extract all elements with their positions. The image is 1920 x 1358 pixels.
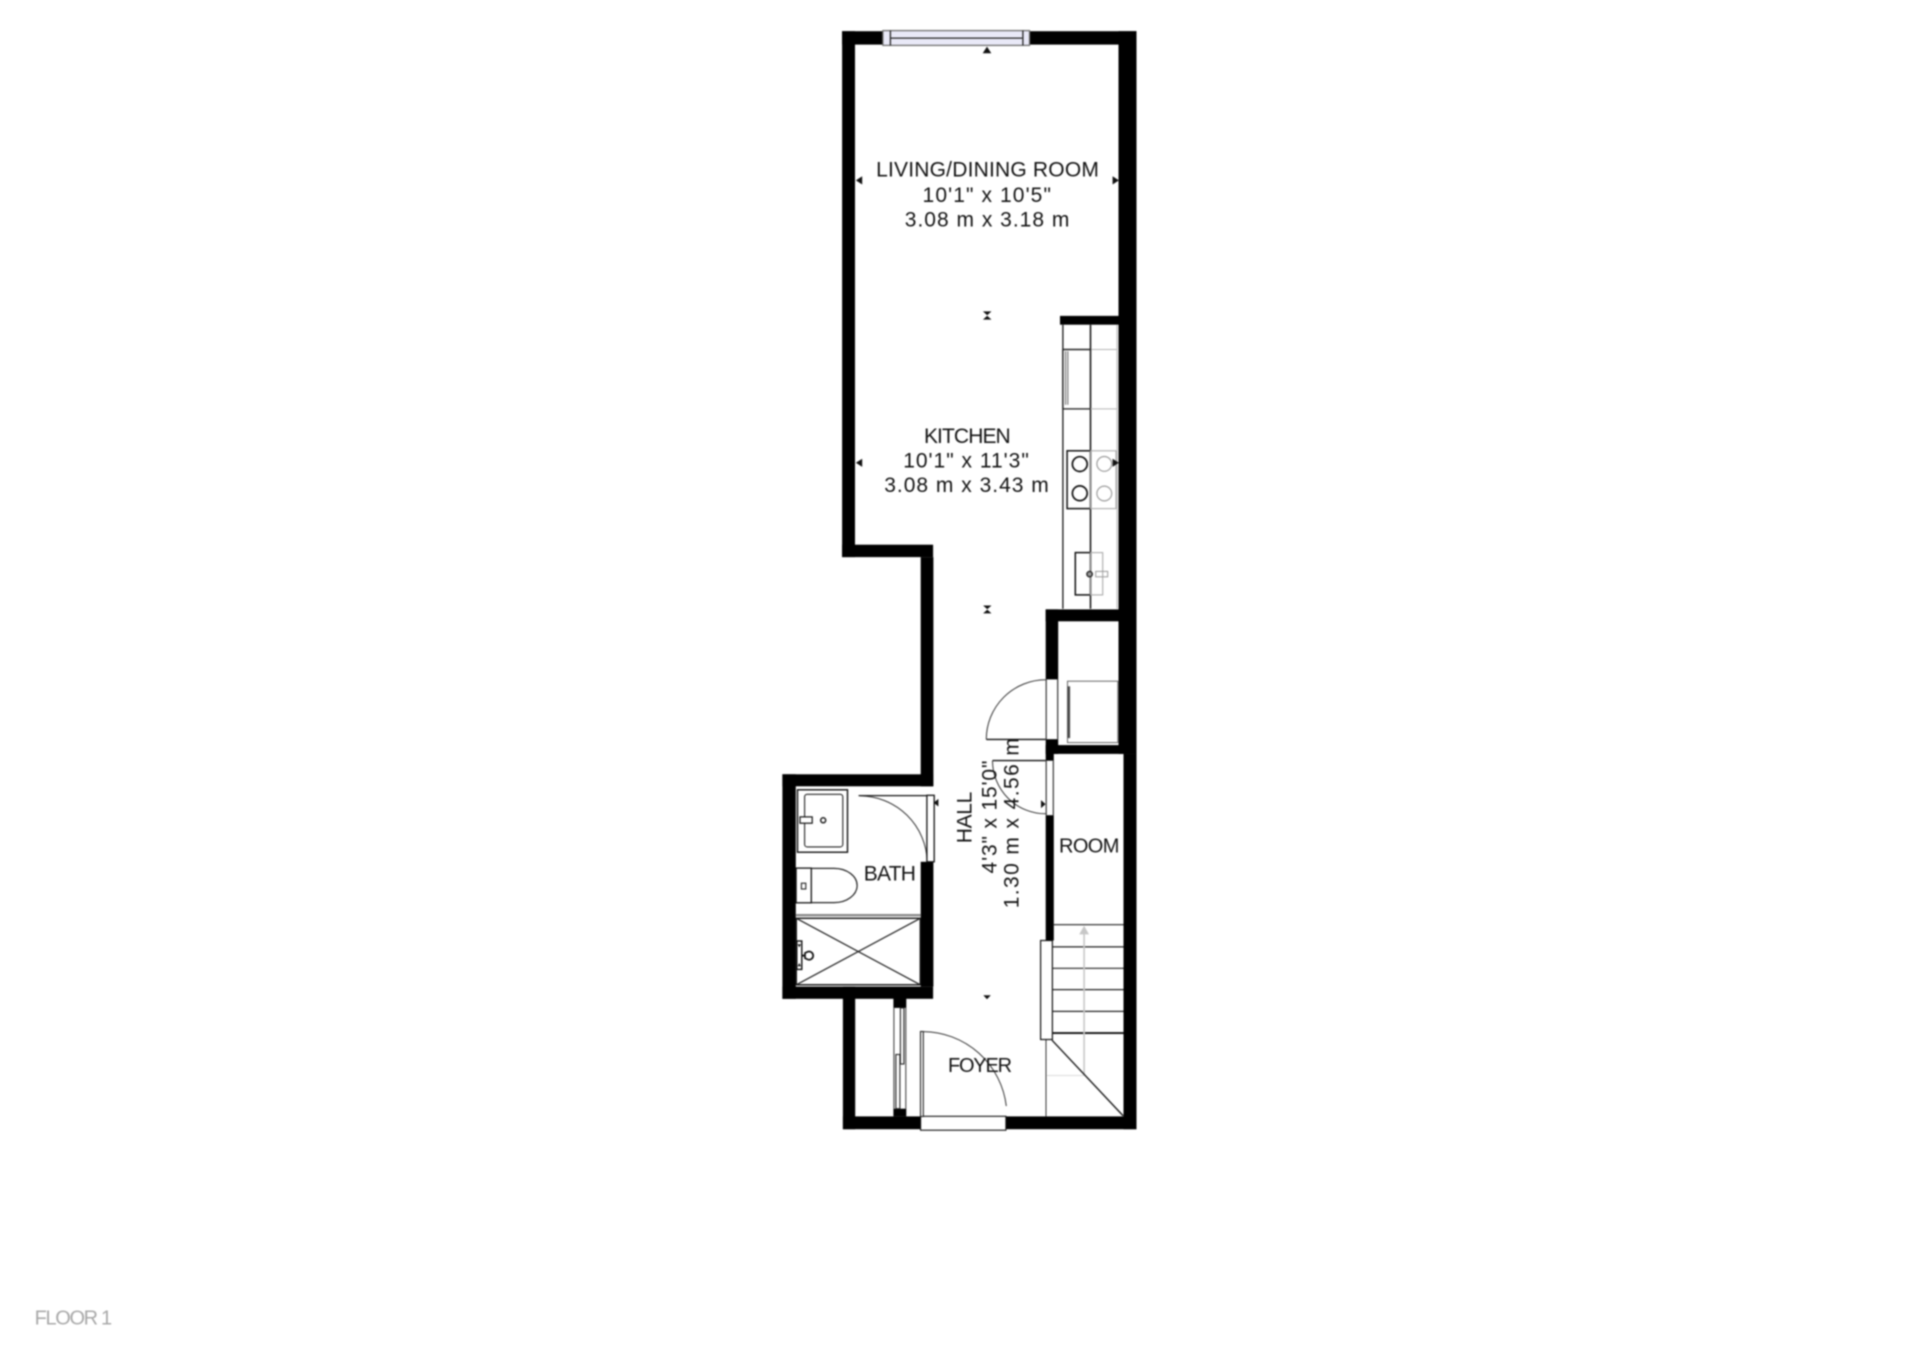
svg-text:4'3" x 15'0": 4'3" x 15'0" — [979, 760, 1002, 874]
svg-text:KITCHEN: KITCHEN — [924, 425, 1010, 448]
svg-text:3.08 m x 3.18 m: 3.08 m x 3.18 m — [905, 209, 1071, 232]
svg-text:LIVING/DINING ROOM: LIVING/DINING ROOM — [876, 158, 1099, 181]
svg-text:3.08 m x 3.43 m: 3.08 m x 3.43 m — [884, 474, 1050, 497]
svg-text:1.30 m x 4.56 m: 1.30 m x 4.56 m — [1001, 737, 1024, 909]
svg-text:FOYER: FOYER — [948, 1055, 1012, 1077]
svg-text:10'1" x 11'3": 10'1" x 11'3" — [903, 449, 1030, 472]
svg-text:FLOOR 1: FLOOR 1 — [35, 1308, 112, 1330]
svg-text:BATH: BATH — [864, 863, 915, 886]
svg-text:HALL: HALL — [954, 792, 977, 843]
svg-text:ROOM: ROOM — [1059, 836, 1119, 858]
svg-text:10'1" x 10'5": 10'1" x 10'5" — [923, 184, 1052, 207]
